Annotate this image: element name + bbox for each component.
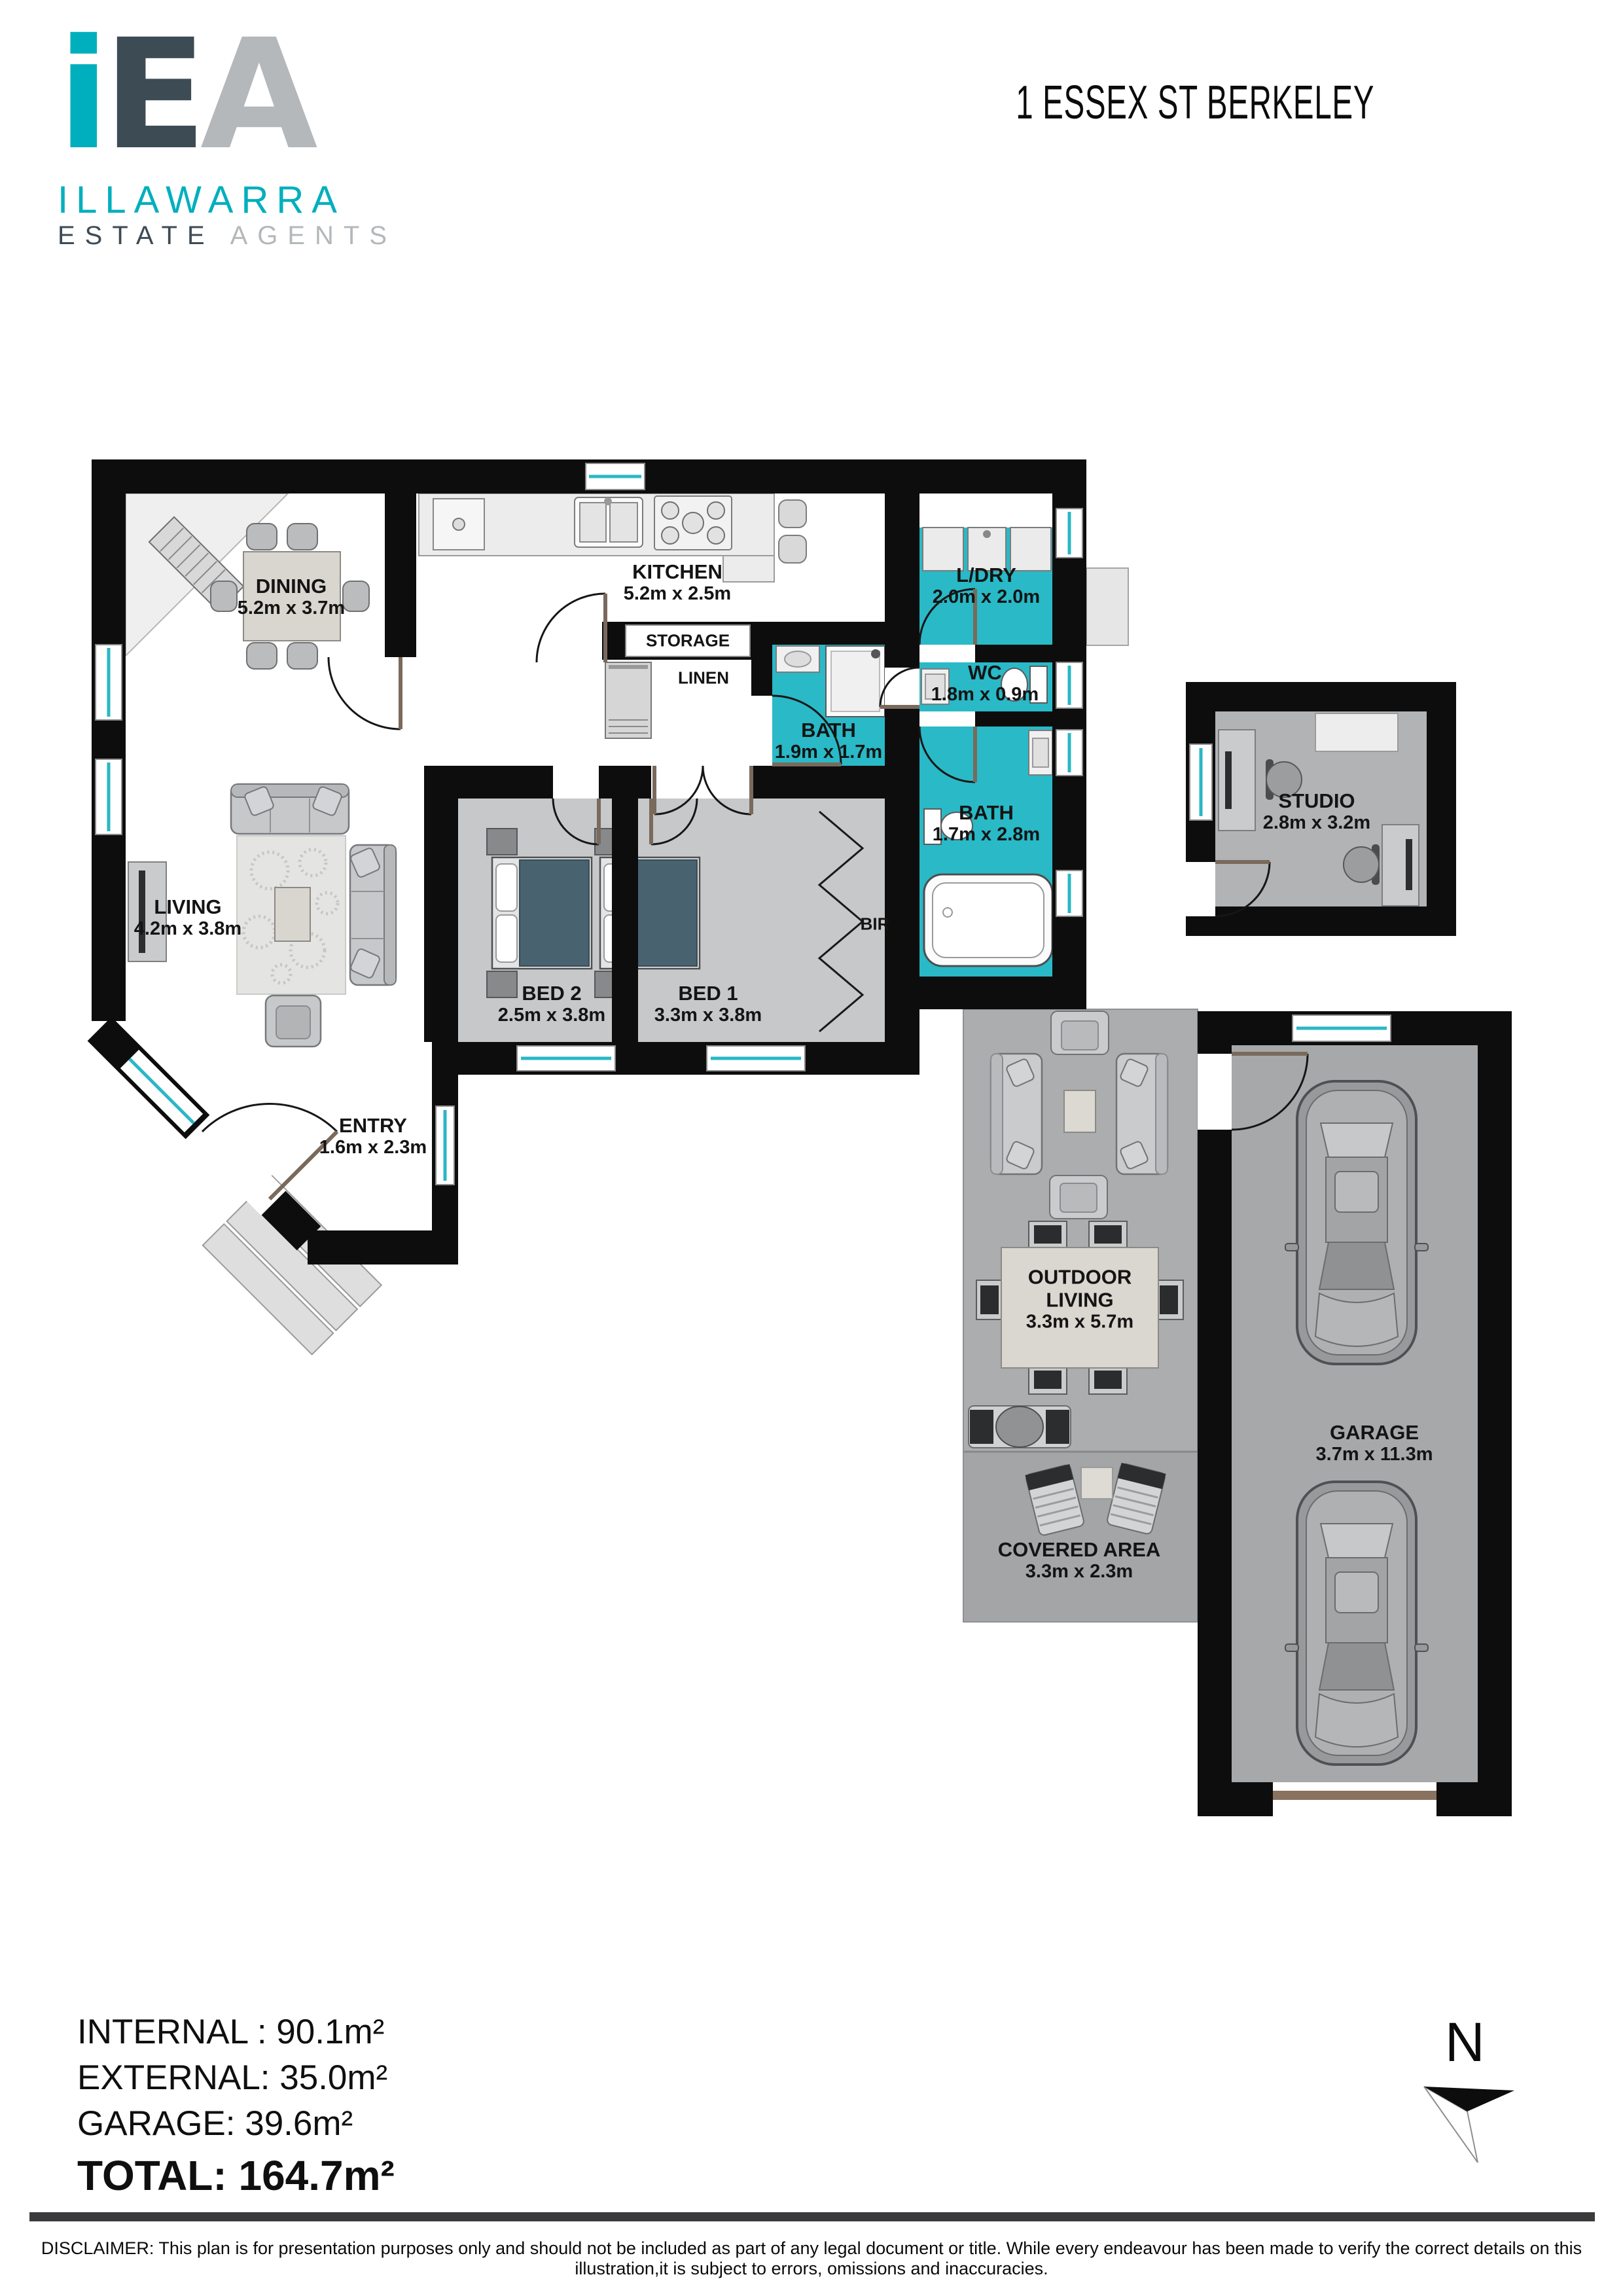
outdoor-table-icon	[1064, 1090, 1096, 1132]
room-label-outdoor-living: OUTDOOR LIVING3.3m x 5.7m	[998, 1266, 1162, 1333]
outdoor-sofa-icon	[991, 1054, 1042, 1174]
oven-icon	[605, 662, 651, 738]
studio-sill	[1315, 713, 1398, 751]
room-label-bath2: BATH1.7m x 2.8m	[933, 801, 1040, 846]
north-arrow-icon	[1424, 2087, 1514, 2162]
outdoor-armchair-icon	[1051, 1011, 1109, 1054]
garage-door	[1273, 1791, 1436, 1800]
outdoor-sofa-icon	[1116, 1054, 1168, 1174]
room-label-bed1: BED 13.3m x 3.8m	[654, 982, 762, 1026]
room-label-linen: LINEN	[678, 668, 729, 687]
floorplan-sheet: { "brand": { "mark_i": "i", "mark_e": "E…	[0, 0, 1623, 2296]
room-label-garage: GARAGE3.7m x 11.3m	[1316, 1421, 1433, 1465]
room-label-dining: DINING5.2m x 3.7m	[238, 575, 345, 619]
sofa-icon	[349, 845, 396, 985]
floorplan-graphic	[0, 0, 1623, 2296]
room-label-storage: STORAGE	[646, 631, 730, 650]
footer-divider	[29, 2212, 1595, 2221]
rear-landing	[1086, 568, 1128, 645]
bathtub-icon	[924, 874, 1052, 966]
room-label-bath1: BATH1.9m x 1.7m	[775, 719, 882, 763]
bath1-basin-icon	[776, 646, 819, 672]
room-label-kitchen: KITCHEN5.2m x 2.5m	[624, 560, 731, 605]
room-label-wc: WC1.8m x 0.9m	[931, 661, 1039, 706]
room-label-bed2: BED 22.5m x 3.8m	[498, 982, 605, 1026]
bbq-icon	[969, 1406, 1071, 1448]
room-label-studio: STUDIO2.8m x 3.2m	[1263, 789, 1370, 834]
room-label-bir: BIR	[861, 914, 890, 933]
outdoor-armchair-icon	[1050, 1175, 1107, 1219]
kitchen-sink-icon	[575, 497, 643, 547]
armchair-icon	[266, 996, 321, 1047]
stool-icon	[779, 535, 806, 563]
room-label-living: LIVING4.2m x 3.8m	[134, 895, 241, 940]
room-label-entry: ENTRY1.6m x 2.3m	[319, 1114, 427, 1158]
stove-icon	[654, 496, 732, 550]
sofa-icon	[231, 784, 349, 834]
room-label-laundry: L/DRY2.0m x 2.0m	[933, 564, 1040, 608]
room-label-covered-area: COVERED AREA3.3m x 2.3m	[997, 1538, 1161, 1583]
shower-icon	[826, 646, 885, 717]
coffee-table-icon	[275, 888, 310, 941]
stool-icon	[779, 500, 806, 528]
side-table-icon	[1081, 1467, 1113, 1499]
bath2-basin-icon	[1029, 730, 1052, 775]
